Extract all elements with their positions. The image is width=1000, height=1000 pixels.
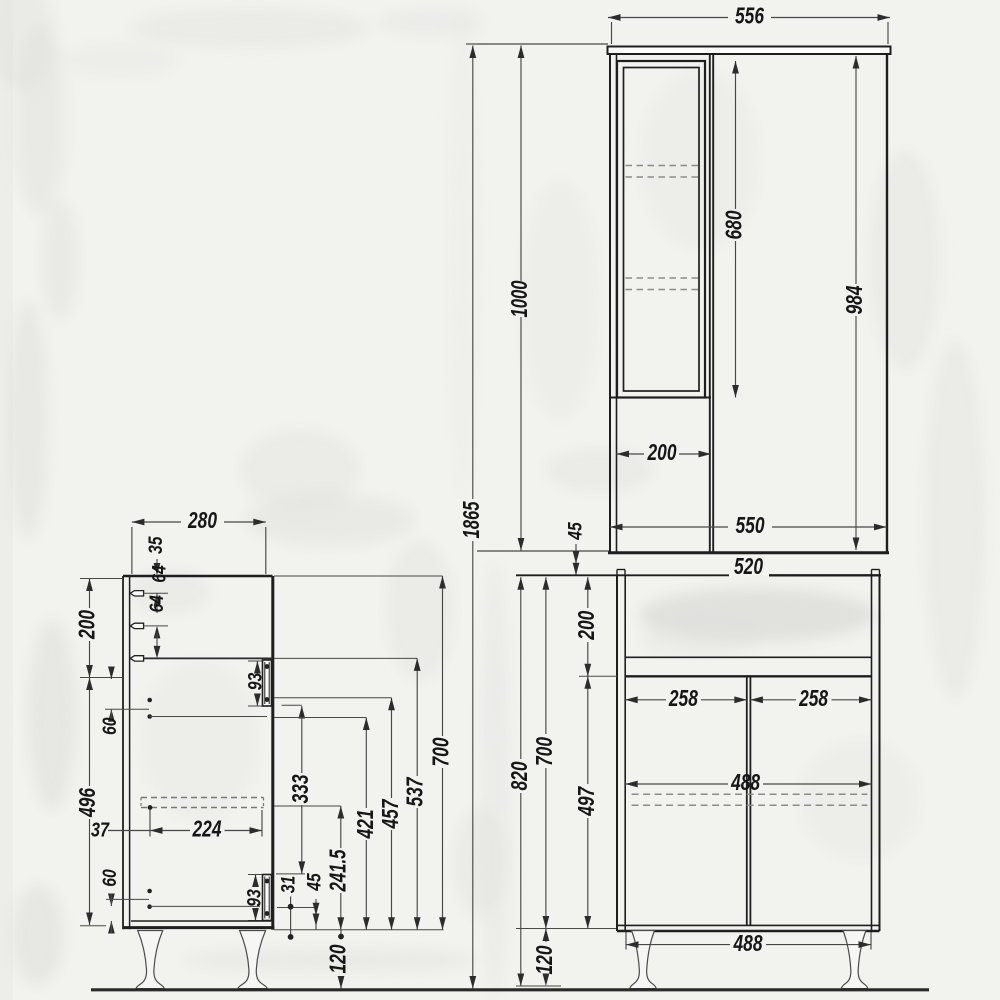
svg-text:64: 64 [146, 595, 168, 613]
svg-text:64: 64 [149, 565, 171, 583]
svg-text:496: 496 [74, 788, 100, 818]
svg-text:224: 224 [192, 816, 222, 842]
svg-text:93: 93 [245, 673, 267, 691]
svg-text:120: 120 [531, 945, 557, 974]
svg-text:488: 488 [730, 769, 760, 795]
svg-text:820: 820 [506, 761, 532, 790]
svg-text:1000: 1000 [506, 280, 532, 317]
svg-text:1865: 1865 [458, 501, 484, 539]
svg-text:60: 60 [99, 717, 121, 735]
svg-text:537: 537 [402, 777, 428, 807]
svg-text:37: 37 [91, 820, 110, 842]
svg-text:258: 258 [668, 685, 698, 711]
svg-text:45: 45 [304, 872, 326, 891]
svg-text:280: 280 [187, 507, 217, 533]
svg-text:93: 93 [244, 889, 266, 907]
svg-text:258: 258 [798, 685, 828, 711]
svg-text:200: 200 [73, 610, 99, 640]
svg-text:35: 35 [145, 536, 167, 554]
svg-text:31: 31 [278, 876, 300, 894]
svg-text:488: 488 [733, 930, 763, 956]
svg-text:200: 200 [573, 611, 599, 641]
svg-text:60: 60 [99, 869, 121, 887]
svg-text:120: 120 [325, 944, 351, 973]
svg-text:421: 421 [352, 810, 378, 840]
svg-text:984: 984 [841, 285, 867, 314]
svg-text:700: 700 [531, 737, 557, 766]
svg-text:520: 520 [734, 553, 763, 579]
svg-text:45: 45 [565, 521, 587, 540]
svg-text:241.5: 241.5 [325, 849, 351, 893]
svg-text:556: 556 [735, 3, 764, 29]
svg-text:680: 680 [721, 210, 747, 239]
svg-text:333: 333 [287, 774, 313, 803]
svg-text:200: 200 [647, 439, 677, 465]
svg-text:457: 457 [377, 799, 403, 830]
svg-text:700: 700 [428, 737, 454, 766]
svg-text:497: 497 [573, 786, 599, 817]
svg-text:550: 550 [736, 512, 765, 538]
